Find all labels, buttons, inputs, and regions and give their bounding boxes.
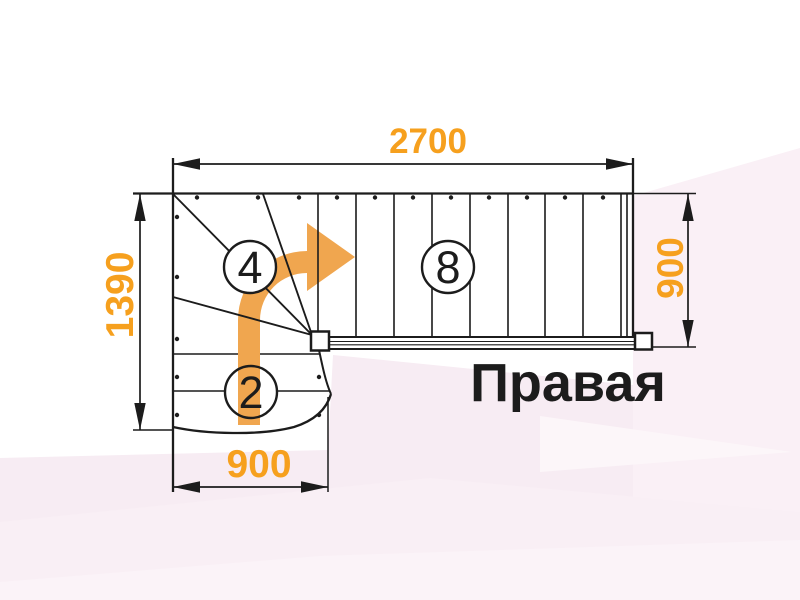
lower-flight-step-count: 2 bbox=[238, 367, 263, 418]
stair-handedness-caption: Правая bbox=[470, 353, 666, 413]
winder-step-count: 4 bbox=[237, 242, 262, 293]
staircase-plan-drawing: 4 8 2 2700 1390 900 900 Правая bbox=[0, 0, 800, 600]
dimension-text-right: 900 bbox=[650, 237, 691, 299]
dimension-text-top: 2700 bbox=[389, 122, 467, 161]
stair-plan-svg: 4 8 2 2700 1390 900 900 Правая bbox=[0, 0, 800, 600]
handrail-band bbox=[326, 337, 638, 349]
newel-post-right bbox=[635, 333, 652, 350]
newel-post-left bbox=[311, 332, 329, 351]
dimension-text-left: 1390 bbox=[99, 252, 142, 339]
upper-flight-step-count: 8 bbox=[435, 242, 460, 293]
dimension-text-bottom: 900 bbox=[226, 443, 291, 486]
